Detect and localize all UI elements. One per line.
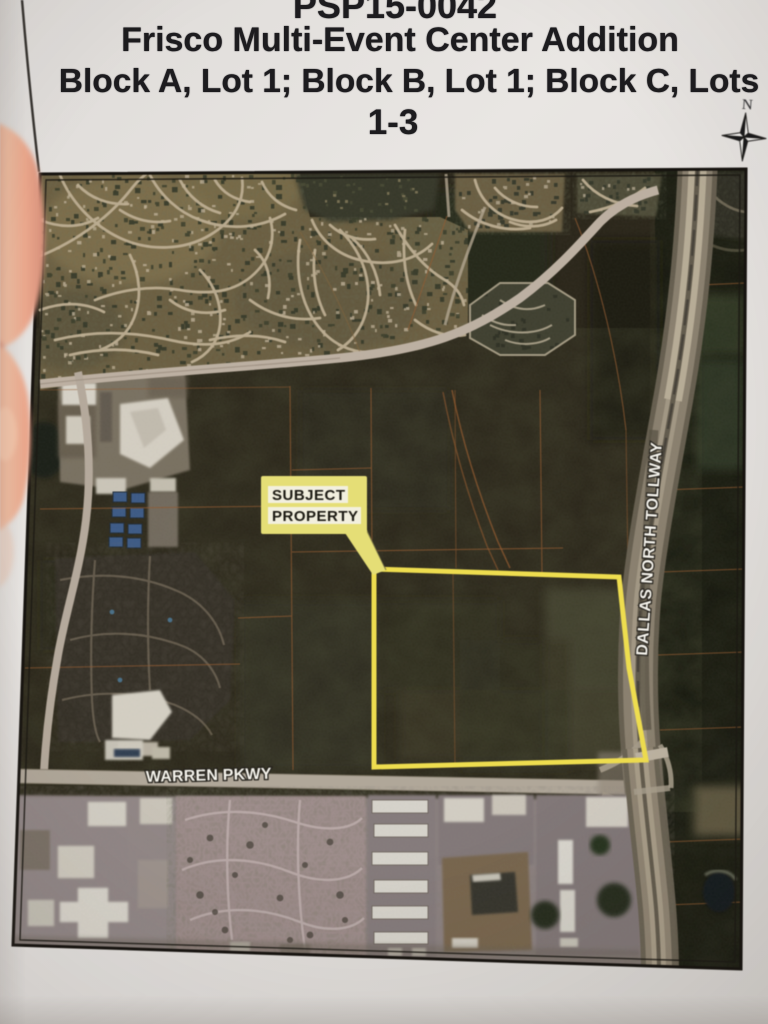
svg-text:WARREN PKWY: WARREN PKWY xyxy=(146,766,272,786)
svg-text:PROPERTY: PROPERTY xyxy=(272,508,359,525)
svg-text:SUBJECT: SUBJECT xyxy=(272,487,346,504)
svg-text:N: N xyxy=(741,97,753,114)
